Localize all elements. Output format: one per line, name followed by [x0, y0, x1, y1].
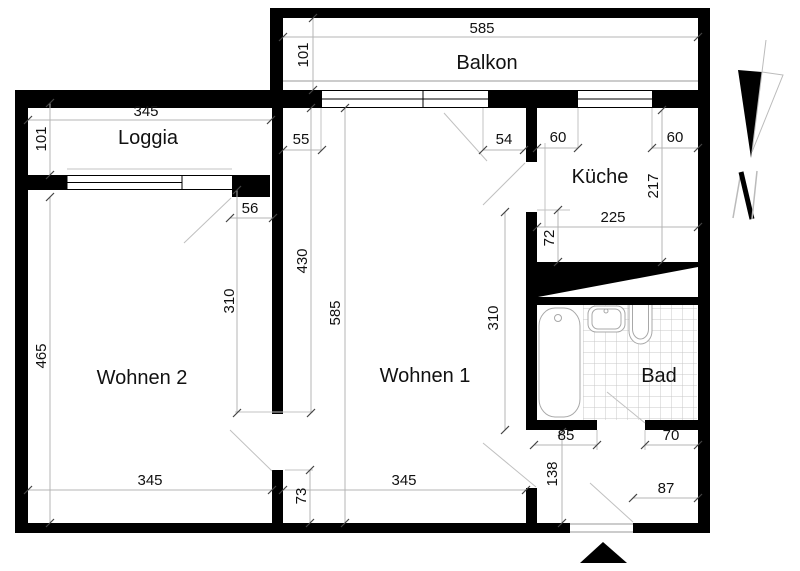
door-swing-kueche	[483, 163, 525, 205]
dim-kueche-win-right-text: 60	[667, 129, 684, 146]
dim-wohnen1-upper-text: 430	[294, 248, 311, 273]
dim-wohnen1-wall: 310	[485, 208, 509, 434]
door-swing-wohnen1	[483, 443, 536, 487]
dim-bad-left: 85	[530, 427, 601, 449]
dim-kueche-win-right: 60	[648, 129, 702, 152]
dim-entry-width: 87	[629, 480, 702, 502]
dim-bad-left-text: 85	[558, 427, 575, 444]
floor-plan-svg: 585 101 345 101 55 54	[0, 0, 800, 571]
bad-fixtures	[539, 305, 697, 420]
dim-wohnen2-wall-text: 310	[221, 288, 238, 313]
door-swing-wohnen2	[230, 430, 272, 471]
north-arrow: N	[0, 0, 783, 219]
dim-bad-right: 70	[641, 427, 702, 449]
dim-entry-width-text: 87	[658, 480, 675, 497]
dim-wohnen2-wall: 310	[221, 186, 241, 417]
north-arrow-needle	[738, 70, 762, 158]
door-swing-loggia	[184, 198, 231, 243]
dim-wohnen2-depth-text: 465	[33, 343, 50, 368]
dim-wohnen2-width-text: 345	[137, 472, 162, 489]
door-swing-entry	[590, 483, 633, 522]
toilet	[629, 305, 652, 344]
entrance-arrow	[580, 542, 627, 563]
dim-wohnen2-depth: 465	[33, 193, 54, 527]
dim-balkon-depth: 101	[295, 14, 317, 94]
sink	[588, 306, 625, 332]
shaft-wedge	[526, 262, 698, 297]
room-label-balkon: Balkon	[456, 52, 517, 74]
dim-balkon-depth-text: 101	[295, 42, 312, 67]
room-label-bad: Bad	[641, 365, 677, 387]
dim-wall-stub: 73	[293, 466, 314, 527]
dim-wohnen1-width-text: 345	[391, 472, 416, 489]
dim-kueche-depth: 217	[645, 106, 666, 266]
dim-kueche-win-left: 60	[533, 129, 582, 152]
dim-wohnen2-width: 345	[24, 472, 276, 494]
dim-pier-left-text: 55	[293, 131, 310, 148]
room-label-wohnen1: Wohnen 1	[380, 365, 471, 387]
dim-kueche-depth-text: 217	[645, 173, 662, 198]
dim-loggia-door: 56	[226, 200, 277, 222]
dim-pier-right: 54	[479, 131, 528, 154]
dim-kueche-door: 72	[541, 206, 562, 266]
dim-kueche-door-text: 72	[541, 230, 558, 247]
dim-wall-stub-text: 73	[293, 488, 310, 505]
window-loggia	[67, 175, 232, 190]
dim-loggia-door-text: 56	[242, 200, 259, 217]
dim-loggia-width-text: 345	[133, 103, 158, 120]
bathtub	[539, 308, 580, 417]
walls	[15, 8, 710, 533]
dim-pier-left: 55	[279, 131, 326, 154]
dim-wohnen1-wall-text: 310	[485, 305, 502, 330]
dim-loggia-depth: 101	[33, 99, 54, 179]
floor-plan-page: 585 101 345 101 55 54	[0, 0, 800, 571]
door-swing-balkon	[444, 113, 487, 161]
room-label-wohnen2: Wohnen 2	[97, 367, 188, 389]
dim-wohnen1-width: 345	[279, 472, 530, 494]
dim-flur-depth-text: 138	[544, 461, 561, 486]
dim-pier-right-text: 54	[496, 131, 513, 148]
north-letter	[733, 171, 757, 219]
dim-kueche-win-left-text: 60	[550, 129, 567, 146]
room-label-kueche: Küche	[572, 166, 629, 188]
dim-kueche-width-text: 225	[600, 209, 625, 226]
dim-balkon-width-text: 585	[469, 20, 494, 37]
dim-wohnen1-depth-text: 585	[327, 300, 344, 325]
dim-bad-right-text: 70	[663, 427, 680, 444]
dim-wohnen1-upper: 430	[294, 104, 315, 417]
window-kueche	[578, 91, 652, 108]
dim-loggia-depth-text: 101	[33, 126, 50, 151]
room-label-loggia: Loggia	[118, 127, 179, 149]
entrance-threshold	[570, 523, 633, 533]
dim-wohnen1-depth: 585	[327, 104, 349, 527]
dim-balkon-width: 585	[279, 20, 702, 41]
